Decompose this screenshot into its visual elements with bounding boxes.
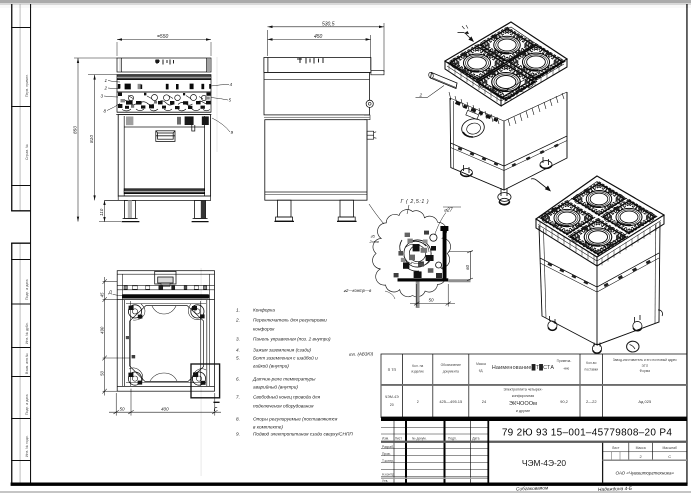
svg-text:90,2: 90,2 — [560, 399, 569, 404]
svg-text:поставки: поставки — [584, 368, 598, 372]
svg-text:9: 9 — [231, 130, 234, 135]
svg-text:45: 45 — [99, 292, 104, 297]
svg-text:⌀27: ⌀27 — [444, 208, 453, 214]
svg-text:документа: документа — [443, 370, 459, 374]
svg-text:-ние: -ние — [563, 367, 570, 371]
svg-text:Электроплита четырех-: Электроплита четырех- — [503, 388, 543, 392]
svg-text:8: 8 — [104, 109, 107, 114]
svg-text:Подп.: Подп. — [448, 437, 457, 441]
svg-text:400: 400 — [161, 407, 169, 412]
svg-text:Разраб.: Разраб. — [382, 445, 394, 449]
svg-text:подключения оборудования: подключения оборудования — [253, 404, 314, 409]
svg-text:Сибгаковаяом: Сибгаковаяом — [516, 485, 549, 492]
svg-text:6.: 6. — [236, 377, 240, 382]
svg-text:2.: 2. — [235, 318, 240, 323]
svg-text:810: 810 — [89, 135, 95, 143]
svg-text:Конфорка: Конфорка — [253, 308, 275, 313]
svg-text:Лист: Лист — [612, 446, 620, 450]
svg-text:тп. (АВЗЮ): тп. (АВЗЮ) — [349, 351, 374, 357]
svg-text:ЧЭМ-4Э-20: ЧЭМ-4Э-20 — [522, 458, 566, 468]
svg-text:Справ. №: Справ. № — [25, 144, 29, 160]
svg-text:79 2Ю 93 15–001–45779808–20 Р4: 79 2Ю 93 15–001–45779808–20 Р4 — [502, 428, 673, 439]
svg-text:Обозначение: Обозначение — [441, 363, 462, 367]
svg-text:Свободный конец провода для: Свободный конец провода для — [253, 394, 321, 400]
svg-text:конфорочная: конфорочная — [512, 394, 534, 398]
svg-text:ед.: ед. — [479, 369, 484, 373]
svg-text:Изм.: Изм. — [382, 437, 389, 441]
svg-text:2отв: 2отв — [369, 240, 379, 244]
svg-text:490: 490 — [99, 326, 104, 334]
svg-text:Ад.025: Ад.025 — [638, 399, 652, 404]
svg-text:ЭТЛ: ЭТЛ — [642, 364, 648, 368]
svg-text:7.: 7. — [236, 395, 240, 400]
svg-text:450: 450 — [314, 34, 323, 40]
svg-text:50: 50 — [99, 371, 104, 376]
svg-text:5: 5 — [229, 98, 232, 103]
svg-text:1: 1 — [105, 78, 108, 83]
svg-text:Кол. на: Кол. на — [412, 364, 423, 368]
svg-text:50: 50 — [120, 407, 126, 412]
svg-text:п тп: п тп — [388, 367, 397, 372]
svg-text:⌀2—контр—в: ⌀2—контр—в — [344, 288, 373, 293]
svg-text:3: 3 — [101, 94, 104, 99]
svg-text:24: 24 — [482, 399, 487, 404]
svg-text:Примеча-: Примеча- — [557, 359, 572, 363]
svg-text:4: 4 — [230, 82, 233, 87]
svg-text:Подп. и дата: Подп. и дата — [25, 279, 29, 300]
svg-text:Панель управления (поз. 2 внут: Панель управления (поз. 2 внутри) — [253, 337, 331, 342]
svg-text:2: 2 — [419, 93, 423, 99]
svg-text:Масса: Масса — [476, 362, 486, 366]
svg-text:850: 850 — [73, 126, 79, 134]
svg-text:8.: 8. — [236, 417, 240, 422]
svg-text:Пров.: Пров. — [382, 452, 391, 456]
svg-text:конфорок: конфорок — [253, 327, 275, 332]
svg-text:Кол-во: Кол-во — [586, 361, 596, 365]
svg-text:Взам. инв.№: Взам. инв.№ — [25, 353, 29, 374]
svg-text:Лист: Лист — [395, 437, 403, 441]
svg-text:Датчик-реле температуры: Датчик-реле температуры — [252, 377, 316, 382]
svg-text:изделие: изделие — [411, 370, 424, 374]
svg-text:110: 110 — [99, 208, 104, 216]
svg-text:530,5: 530,5 — [322, 21, 335, 27]
svg-text:Подп. и дата: Подп. и дата — [25, 394, 29, 415]
svg-text:Наименование█Т█СТА: Наименование█Т█СТА — [492, 364, 555, 371]
svg-text:Опоры регулируемые (поставляют: Опоры регулируемые (поставляются — [253, 417, 338, 422]
svg-text:Инв. № дубл.: Инв. № дубл. — [25, 322, 29, 344]
svg-text:9.: 9. — [236, 432, 240, 437]
svg-text:4.: 4. — [236, 348, 240, 353]
svg-text:Утв.: Утв. — [382, 479, 388, 483]
svg-text:Болт заземления с шайбой и: Болт заземления с шайбой и — [253, 355, 318, 361]
svg-text:2: 2 — [104, 86, 108, 91]
svg-text:Зажим заземления (сзади): Зажим заземления (сзади) — [253, 348, 311, 353]
svg-text:№ докум.: № докум. — [412, 437, 427, 441]
svg-text:2: 2 — [417, 400, 419, 404]
svg-text:Инв. № подл.: Инв. № подл. — [25, 435, 29, 457]
svg-text:Переключатель для регулировки: Переключатель для регулировки — [253, 318, 327, 323]
svg-text:С: С — [668, 454, 671, 459]
svg-text:60: 60 — [465, 264, 470, 270]
svg-text:=550: =550 — [157, 34, 168, 40]
svg-text:Н.контр.: Н.контр. — [382, 472, 395, 476]
svg-text:Подвод электропитания сзади св: Подвод электропитания сзади сверху/СНПП — [253, 432, 353, 437]
svg-text:50: 50 — [429, 298, 435, 303]
svg-text:Масштаб: Масштаб — [662, 446, 677, 450]
svg-text:20: 20 — [390, 403, 394, 407]
svg-text:гайкой (внутри): гайкой (внутри) — [253, 363, 289, 369]
svg-text:Надеждина 4-Б: Надеждина 4-Б — [598, 486, 632, 493]
svg-text:Т.контр.: Т.контр. — [382, 459, 394, 463]
svg-text:Завод-изготовитель и его почто: Завод-изготовитель и его почтовый адрес — [613, 358, 678, 362]
svg-text:5.: 5. — [236, 356, 240, 361]
svg-text:ОАО «Чувашторгтехника»: ОАО «Чувашторгтехника» — [616, 471, 675, 476]
svg-text:425—495.15: 425—495.15 — [439, 399, 463, 404]
svg-text:аварийный (внутри): аварийный (внутри) — [253, 384, 298, 390]
svg-text:2—22: 2—22 — [586, 399, 597, 404]
svg-text:1.: 1. — [236, 308, 240, 313]
svg-text:Г ( 2,5:1 ): Г ( 2,5:1 ) — [401, 199, 430, 205]
svg-text:ЧЭМ-4Э: ЧЭМ-4Э — [385, 395, 399, 399]
svg-text:и другие: и другие — [516, 409, 530, 413]
svg-text:Масса: Масса — [636, 446, 646, 450]
svg-text:Дата: Дата — [472, 437, 479, 441]
svg-text:3.: 3. — [236, 337, 240, 342]
svg-text:ЭКЧОООм: ЭКЧОООм — [509, 401, 537, 407]
svg-text:в комплекте): в комплекте) — [253, 425, 283, 430]
svg-text:Перв. примен.: Перв. примен. — [25, 74, 29, 97]
svg-text:Форма: Форма — [640, 369, 650, 373]
svg-text:Д: Д — [108, 290, 113, 295]
